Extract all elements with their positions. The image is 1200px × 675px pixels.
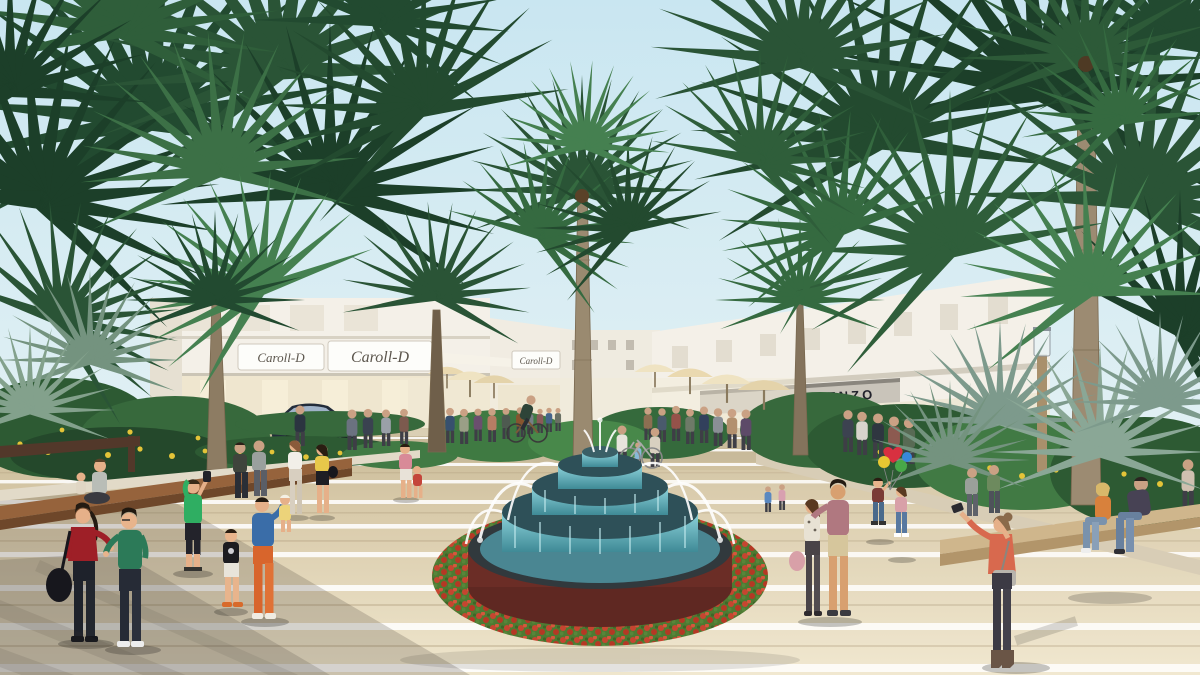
caroll-sign-3: Caroll-D — [520, 356, 553, 366]
scene-canvas: Caroll-D Caroll-D Caroll-D KENZO — [0, 0, 1200, 675]
caroll-sign-2: Caroll-D — [351, 349, 410, 366]
caroll-sign-1: Caroll-D — [257, 350, 305, 365]
plaza-rendering: Caroll-D Caroll-D Caroll-D KENZO — [0, 0, 1200, 675]
